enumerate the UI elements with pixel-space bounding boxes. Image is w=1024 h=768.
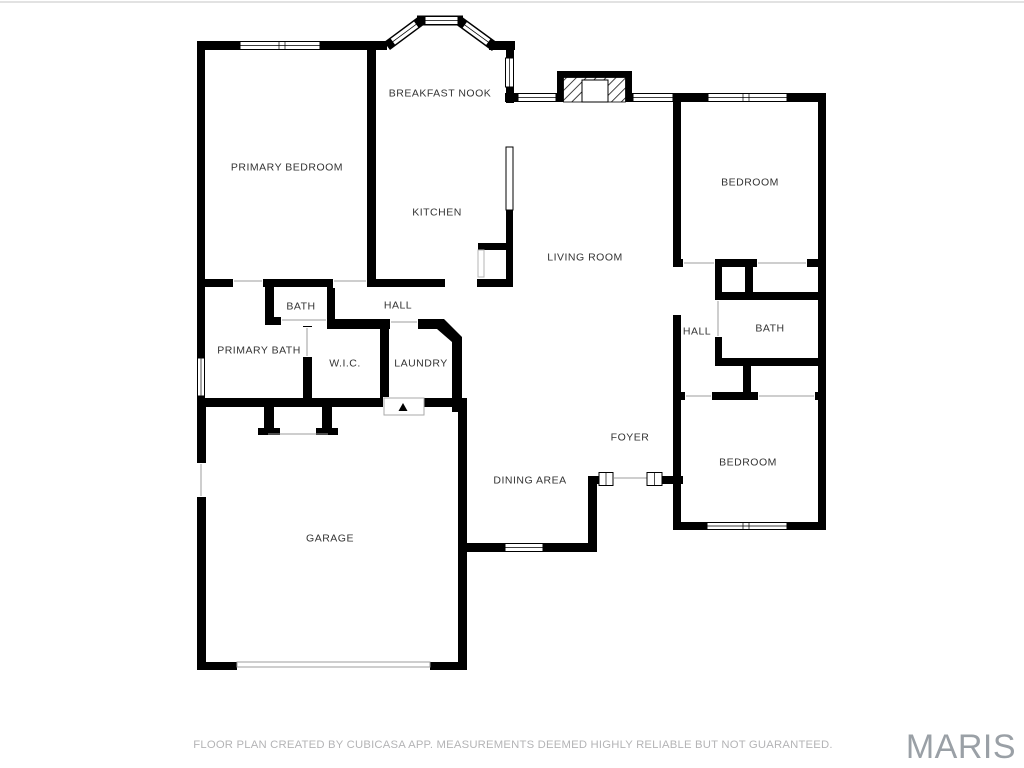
room-label-hall-left: HALL (384, 300, 412, 312)
entry-sidelight-right (647, 473, 662, 486)
bay-window (387, 17, 495, 48)
room-label-bedroom-bottom-right: BEDROOM (719, 457, 777, 469)
windows (198, 42, 788, 552)
room-label-foyer: FOYER (611, 432, 650, 444)
room-label-hall-right: HALL (683, 326, 711, 338)
room-label-bath-right: BATH (755, 323, 784, 335)
disclaimer-text: FLOOR PLAN CREATED BY CUBICASA APP. MEAS… (193, 739, 832, 751)
room-label-kitchen: KITCHEN (412, 207, 462, 219)
window-primary-bedroom (240, 42, 320, 50)
window-dining (505, 544, 543, 552)
window-primary-bath (198, 358, 205, 396)
fireplace (557, 71, 632, 102)
room-label-laundry: LAUNDRY (394, 358, 448, 370)
room-label-wic: W.I.C. (329, 358, 361, 370)
room-label-bedroom-top-right: BEDROOM (721, 177, 779, 189)
entry-sidelight-left (599, 473, 613, 486)
window-bedroom-top-right (708, 94, 787, 102)
bay-window-left (390, 21, 419, 45)
room-label-bath-left: BATH (286, 301, 315, 313)
entry-step-arrow (384, 398, 424, 415)
room-label-breakfast-nook: BREAKFAST NOOK (389, 88, 492, 100)
room-label-dining-area: DINING AREA (493, 475, 566, 487)
maris-watermark: MARIS (906, 728, 1016, 766)
garage-door (237, 662, 430, 667)
room-label-living-room: LIVING ROOM (547, 252, 623, 264)
window-living-right (633, 94, 673, 102)
pantry-door (478, 250, 484, 277)
room-label-primary-bedroom: PRIMARY BEDROOM (231, 162, 343, 174)
room-label-garage: GARAGE (306, 533, 354, 545)
window-nook-side (506, 58, 514, 87)
bay-window-top (425, 17, 458, 25)
kitchen-counter (506, 147, 513, 210)
window-living-left (518, 94, 556, 102)
room-label-primary-bath: PRIMARY BATH (217, 345, 301, 357)
floor-plan-image: PRIMARY BEDROOM BREAKFAST NOOK KITCHEN L… (0, 0, 1024, 768)
window-bedroom-bottom-right (707, 523, 787, 530)
bay-window-right (462, 21, 491, 45)
